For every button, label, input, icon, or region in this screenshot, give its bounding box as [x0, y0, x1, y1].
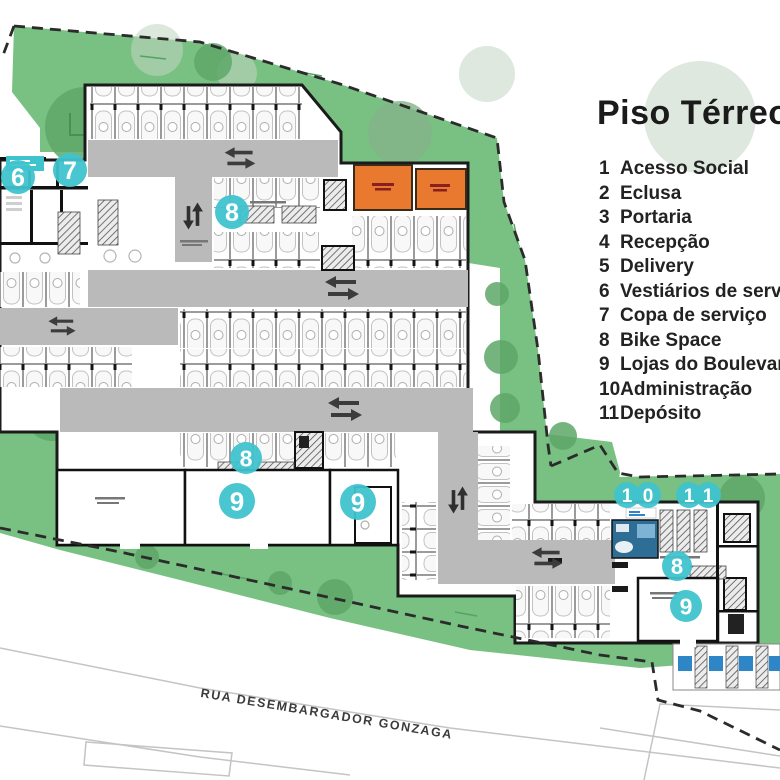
orange-rooms: [354, 165, 466, 210]
svg-text:1: 1: [684, 486, 695, 507]
legend-item: 6Vestiários de serv: [599, 280, 780, 305]
legend-list: 1Acesso Social2Eclusa3Portaria4Recepção5…: [599, 157, 780, 427]
plan-marker: 1: [695, 482, 721, 508]
legend-item-number: 7: [599, 304, 620, 329]
svg-text:1: 1: [622, 486, 633, 507]
svg-text:7: 7: [63, 157, 77, 185]
legend-item: 1Acesso Social: [599, 157, 780, 182]
legend-item-number: 3: [599, 206, 620, 231]
legend-item: 3Portaria: [599, 206, 780, 231]
plan-marker: 9: [219, 483, 255, 519]
legend-item-label: Acesso Social: [620, 157, 749, 182]
legend-item: 4Recepção: [599, 231, 780, 256]
legend-item-label: Vestiários de serv: [620, 280, 780, 305]
floor-plan-page: { "legend": { "title": "Piso Térreo", "i…: [0, 0, 780, 780]
plan-marker: 6: [1, 160, 35, 194]
muted-tree: [368, 101, 432, 165]
traffic-island: [84, 742, 232, 776]
legend-item-label: Bike Space: [620, 329, 721, 354]
svg-text:9: 9: [230, 486, 244, 516]
legend-item-label: Lojas do Boulevar: [620, 353, 780, 378]
legend-item-number: 2: [599, 182, 620, 207]
svg-text:9: 9: [351, 487, 365, 517]
svg-text:8: 8: [240, 445, 253, 471]
legend-item-label: Eclusa: [620, 182, 681, 207]
legend-item-label: Delivery: [620, 255, 694, 280]
plan-marker: 8: [215, 195, 249, 229]
legend-item-label: Portaria: [620, 206, 692, 231]
legend-item-label: Administração: [620, 378, 752, 403]
legend-item-label: Recepção: [620, 231, 710, 256]
svg-text:8: 8: [671, 554, 683, 579]
legend-item-number: 1: [599, 157, 620, 182]
plan-marker: 8: [662, 551, 692, 581]
legend-item: 2Eclusa: [599, 182, 780, 207]
legend-item-number: 8: [599, 329, 620, 354]
legend: Piso Térreo 1Acesso Social2Eclusa3Portar…: [597, 94, 780, 427]
legend-item-label: Depósito: [620, 402, 701, 427]
legend-item: 9Lojas do Boulevar: [599, 353, 780, 378]
plan-marker: 9: [670, 590, 702, 622]
legend-item-number: 11: [599, 402, 620, 427]
legend-item: 5Delivery: [599, 255, 780, 280]
plan-title: Piso Térreo: [597, 94, 780, 133]
svg-text:1: 1: [703, 486, 714, 507]
legend-item-number: 9: [599, 353, 620, 378]
svg-text:0: 0: [643, 486, 654, 507]
plan-marker: 9: [340, 484, 376, 520]
legend-item: 7Copa de serviço: [599, 304, 780, 329]
svg-text:8: 8: [225, 199, 239, 227]
legend-item: 8Bike Space: [599, 329, 780, 354]
legend-item: 11Depósito: [599, 402, 780, 427]
orange-room-left: [354, 165, 412, 210]
moto-stalls: [673, 644, 780, 690]
legend-item: 10Administração: [599, 378, 780, 403]
plan-marker: 7: [53, 153, 87, 187]
legend-item-number: 5: [599, 255, 620, 280]
legend-item-number: 10: [599, 378, 620, 403]
legend-item-number: 4: [599, 231, 620, 256]
plan-marker: 0: [635, 482, 661, 508]
legend-item-number: 6: [599, 280, 620, 305]
legend-item-label: Copa de serviço: [620, 304, 767, 329]
svg-text:6: 6: [11, 164, 25, 192]
street-lines: [0, 648, 780, 780]
plan-marker: 8: [230, 442, 262, 474]
wall-right-wing: [716, 502, 719, 643]
svg-text:9: 9: [680, 593, 693, 619]
